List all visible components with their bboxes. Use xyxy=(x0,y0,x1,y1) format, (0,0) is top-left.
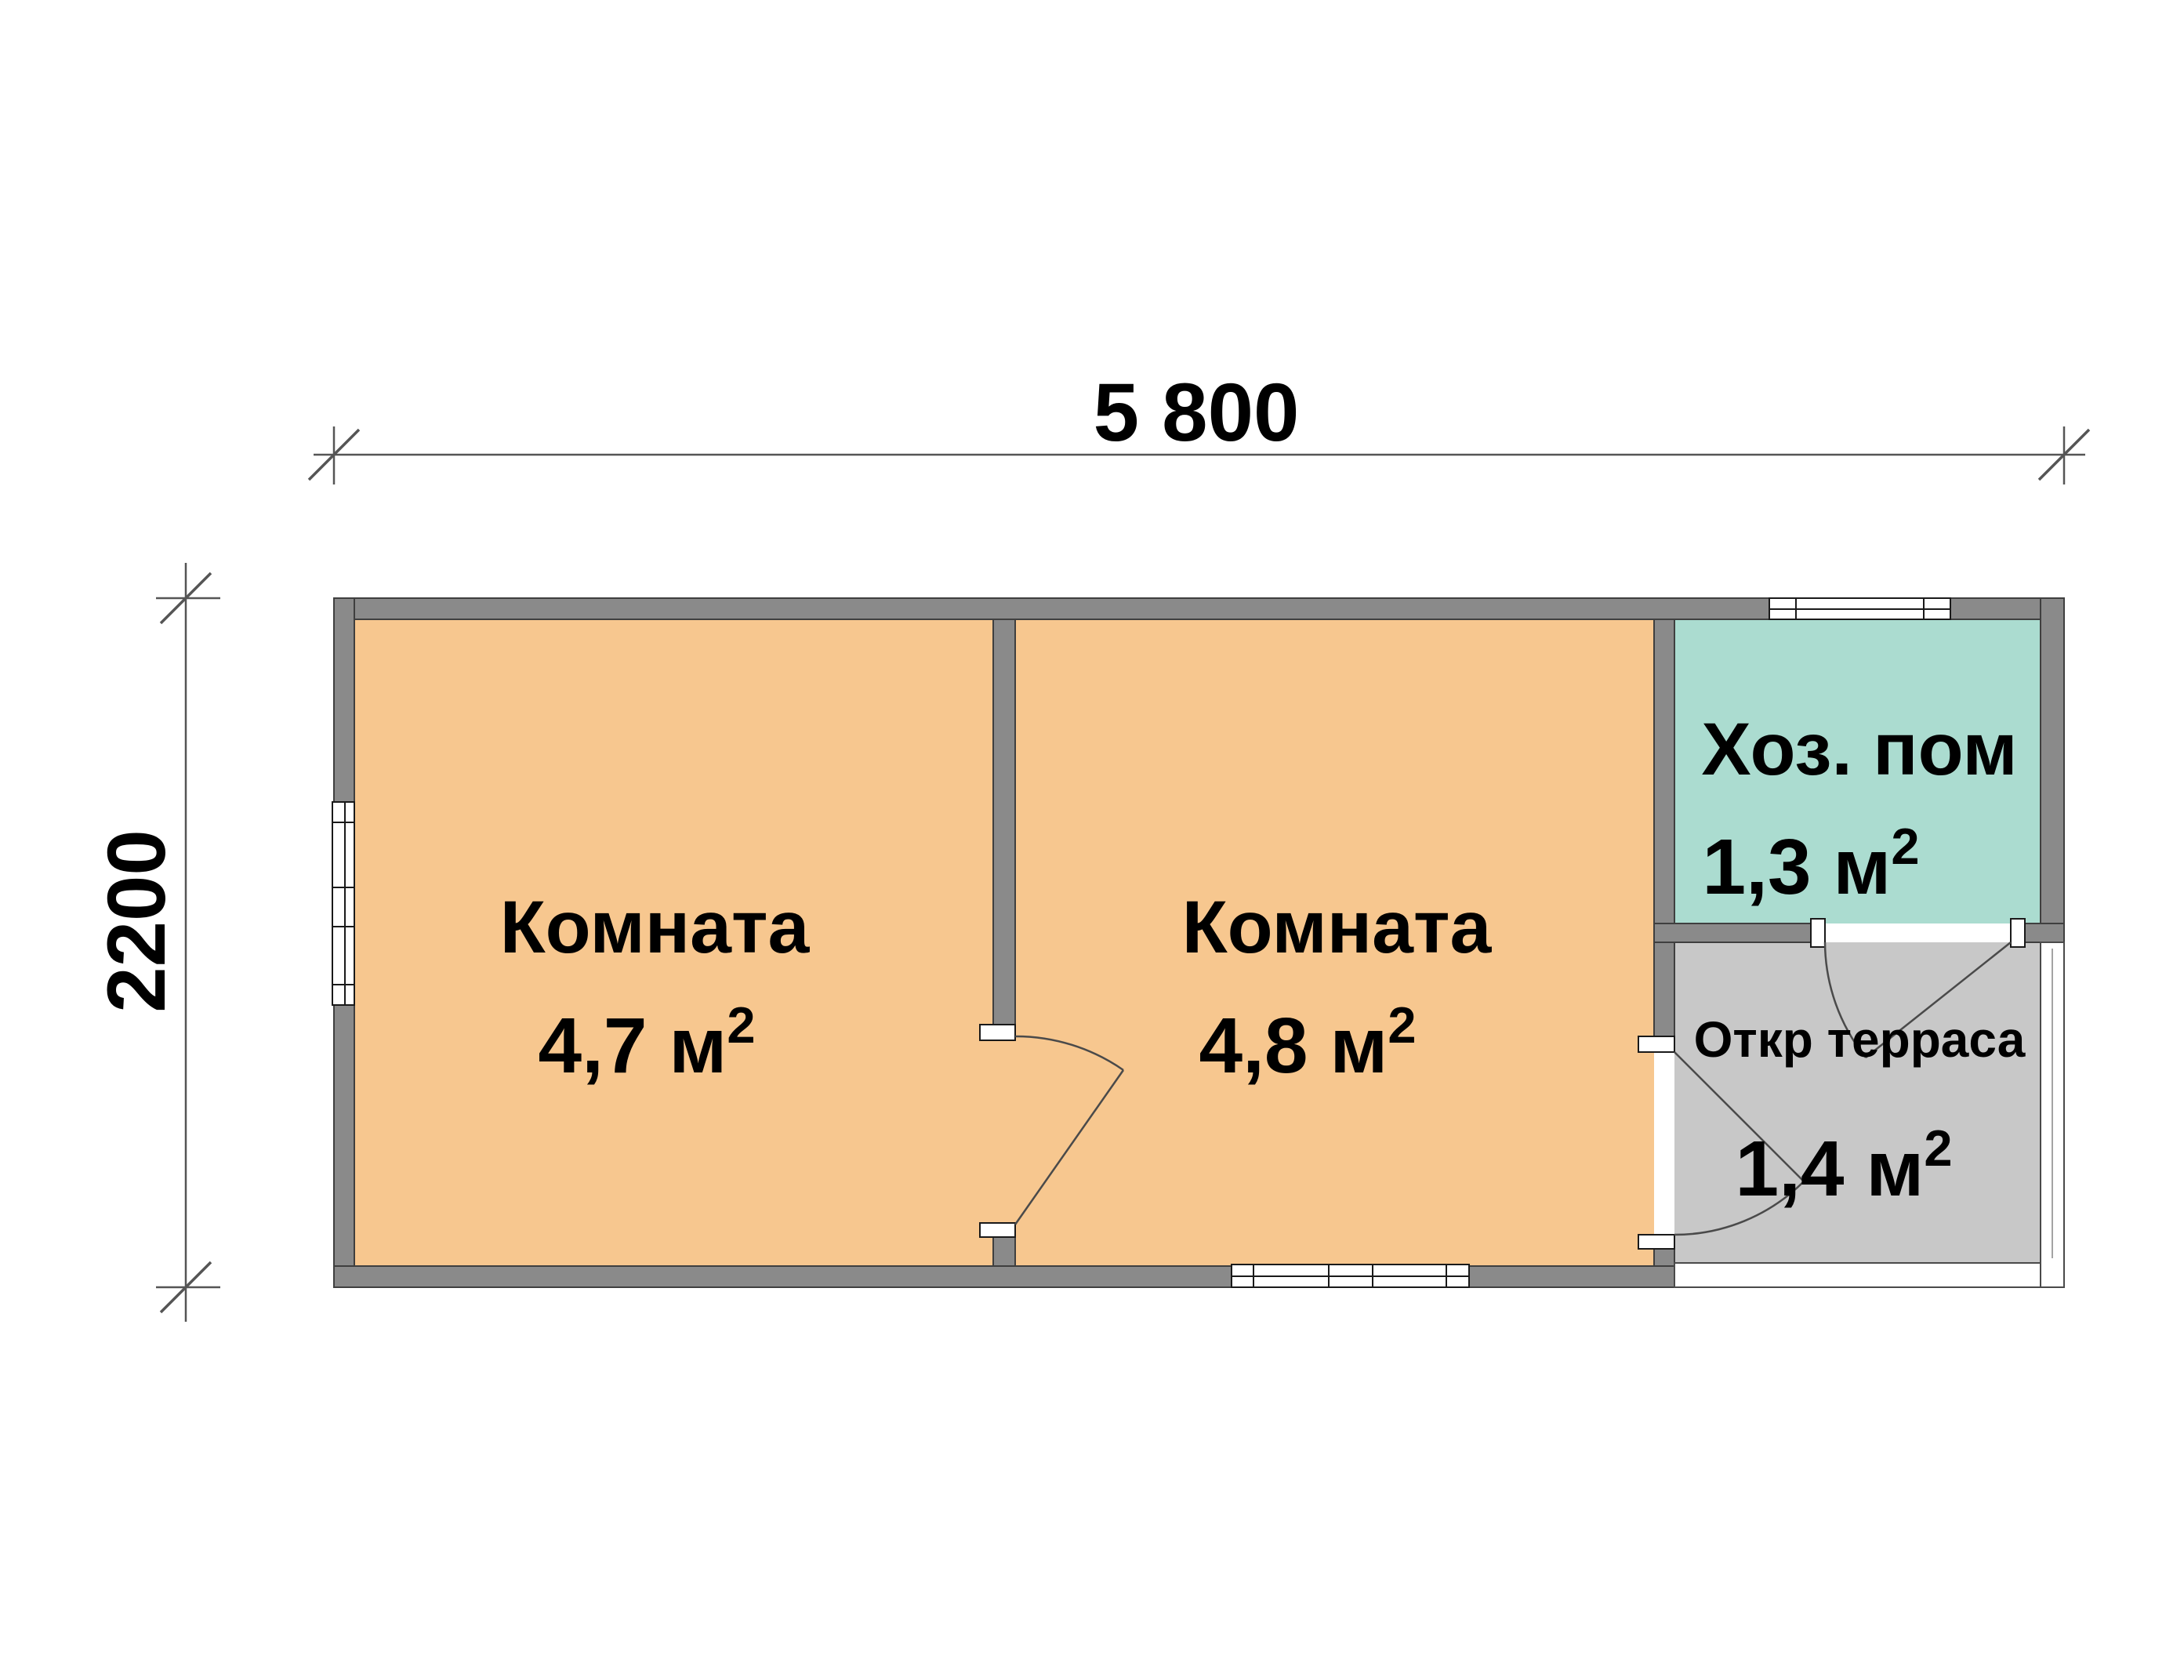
utility-room-area-sup: 2 xyxy=(1891,818,1919,875)
door-a-jamb-bottom xyxy=(980,1223,1015,1237)
terrace-floor xyxy=(1674,942,2041,1263)
floor-plan-drawing: 5 800 2200 Комната 4,7 м2 Комната 4,8 м2… xyxy=(0,0,2184,1680)
window-bottom-wall xyxy=(1232,1265,1469,1287)
window-left-wall xyxy=(332,802,354,1005)
wall-bottom xyxy=(334,1266,1674,1287)
wall-partition-a-stub xyxy=(993,1237,1015,1266)
wall-right-utility xyxy=(2041,598,2064,942)
wall-partition-b-stub xyxy=(1654,1249,1674,1266)
wall-utility-bottom-left xyxy=(1654,923,1811,942)
dimension-height-label: 2200 xyxy=(91,829,183,1013)
terrace-area-value: 1,4 м xyxy=(1736,1125,1925,1213)
room-2-area-sup: 2 xyxy=(1388,996,1416,1054)
door-b-jamb-top xyxy=(1638,1036,1674,1052)
terrace-area: 1,4 м2 xyxy=(1736,1119,1953,1213)
room-2-label: Комната xyxy=(1182,886,1493,969)
door-a-jamb-top xyxy=(980,1025,1015,1040)
door-c-jamb-left xyxy=(1811,919,1825,947)
window-top-wall-utility xyxy=(1769,598,1950,619)
utility-room-label: Хоз. пом xyxy=(1701,708,2017,791)
room-1-area-value: 4,7 м xyxy=(539,1002,727,1090)
window-left-frame xyxy=(332,802,354,1005)
wall-partition-a-upper xyxy=(993,619,1015,1025)
room-1-area: 4,7 м2 xyxy=(539,996,756,1090)
room-2-area: 4,8 м2 xyxy=(1199,996,1417,1090)
wall-utility-bottom-right xyxy=(2025,923,2064,942)
room-1-label: Комната xyxy=(500,886,811,969)
wall-partition-b-upper xyxy=(1654,619,1674,1036)
utility-room-area-value: 1,3 м xyxy=(1703,823,1892,911)
terrace-area-sup: 2 xyxy=(1924,1119,1952,1177)
door-b-jamb-bottom xyxy=(1638,1235,1674,1249)
door-c-jamb-right xyxy=(2011,919,2025,947)
terrace-open-edge-bottom xyxy=(1674,1263,2064,1287)
room-2-area-value: 4,8 м xyxy=(1199,1002,1388,1090)
dimension-width-label: 5 800 xyxy=(1094,367,1300,459)
floor-plan-page: 5 800 2200 Комната 4,7 м2 Комната 4,8 м2… xyxy=(0,0,2184,1680)
utility-room-area: 1,3 м2 xyxy=(1703,818,1920,911)
room-1-area-sup: 2 xyxy=(727,996,755,1054)
terrace-label: Откр терраса xyxy=(1694,1011,2026,1068)
